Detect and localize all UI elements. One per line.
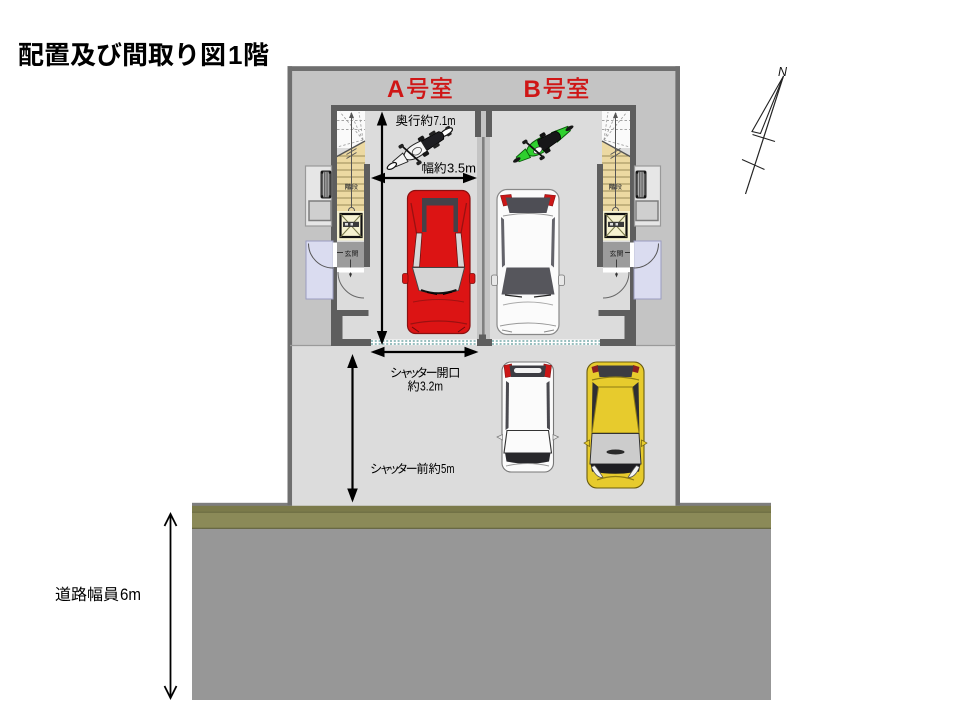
svg-text:5m: 5m: [441, 461, 455, 476]
svg-text:B: B: [524, 76, 541, 103]
svg-text:7.1m: 7.1m: [434, 113, 456, 128]
svg-text:3.2m: 3.2m: [420, 379, 443, 394]
svg-text:N: N: [778, 65, 788, 79]
svg-text:6m: 6m: [120, 586, 141, 604]
svg-text:A: A: [387, 76, 404, 103]
svg-text:3.5m: 3.5m: [447, 161, 476, 176]
svg-text:1: 1: [228, 40, 242, 70]
